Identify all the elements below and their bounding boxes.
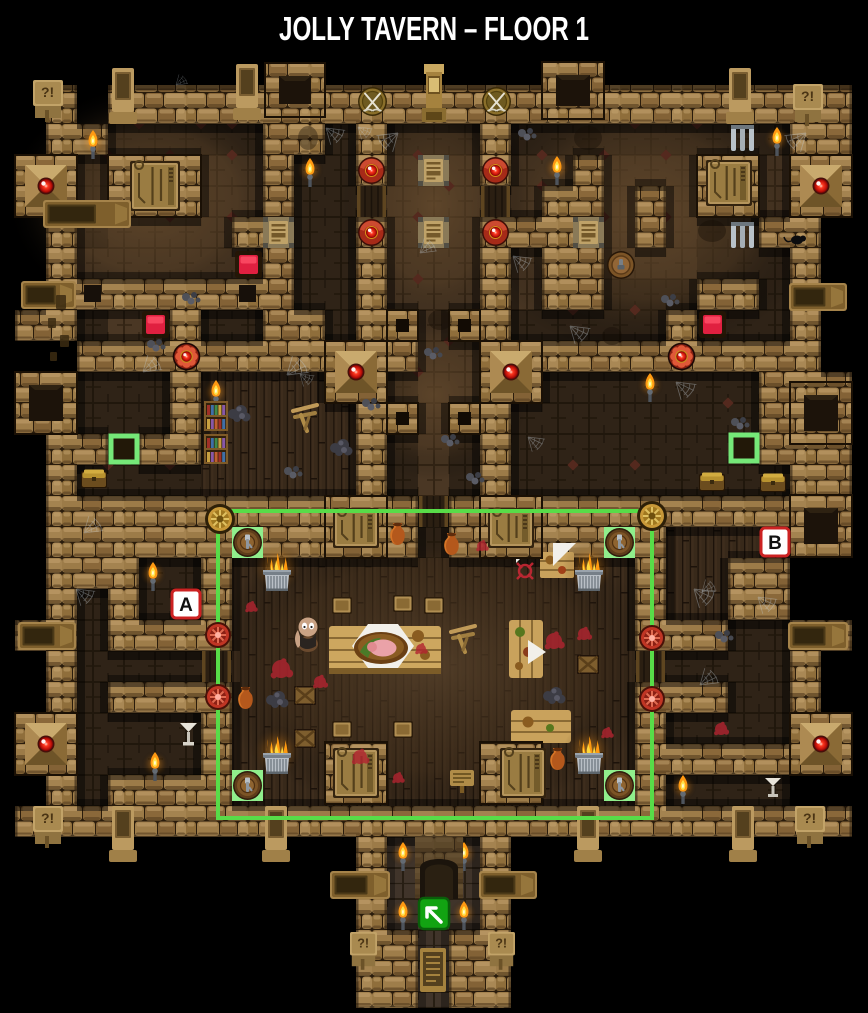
svg-text:JOLLY TAVERN – FLOOR 1: JOLLY TAVERN – FLOOR 1 — [279, 10, 589, 47]
svg-text:?!: ?! — [803, 810, 816, 826]
svg-text:?!: ?! — [801, 88, 814, 104]
svg-text:?!: ?! — [41, 810, 54, 826]
svg-text:?!: ?! — [495, 936, 507, 950]
svg-text:?!: ?! — [41, 84, 54, 100]
svg-text:A: A — [179, 595, 193, 616]
svg-text:B: B — [768, 533, 782, 554]
svg-text:?!: ?! — [357, 936, 369, 950]
